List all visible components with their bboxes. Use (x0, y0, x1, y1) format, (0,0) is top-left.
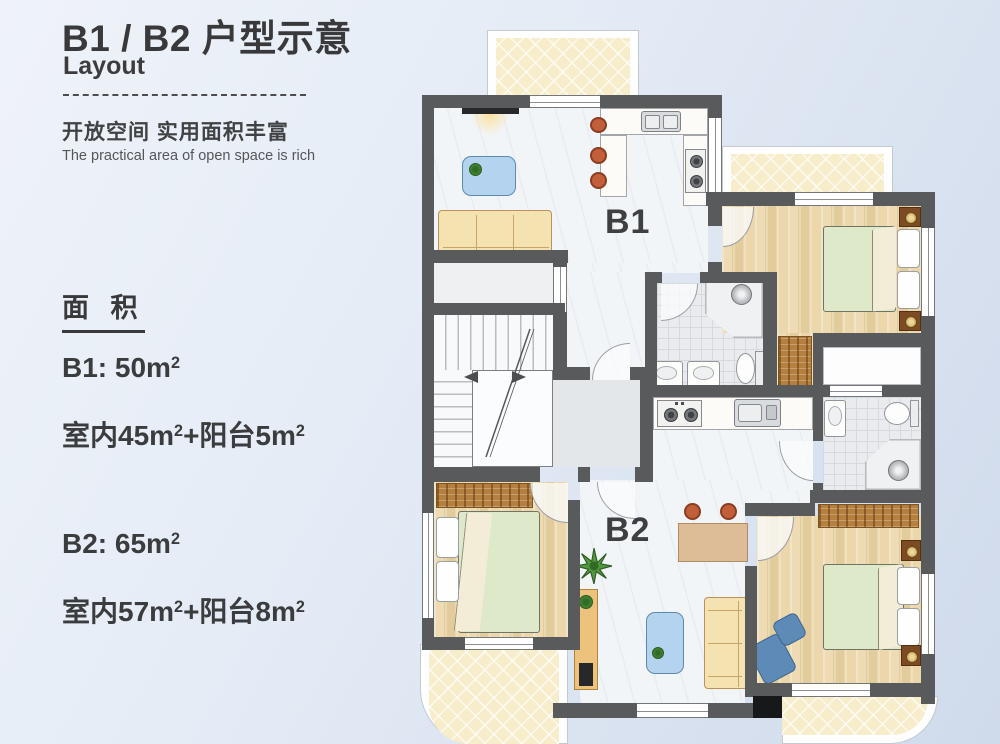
window (921, 228, 935, 318)
pillow (897, 271, 920, 309)
plant-icon (576, 548, 612, 584)
bathroom-sink (687, 361, 720, 388)
bar-stool (590, 147, 607, 164)
toilet-b2 (884, 402, 910, 425)
stove-b1 (685, 149, 706, 193)
window (830, 385, 882, 397)
entry-marker (753, 696, 782, 718)
wall-segment (422, 95, 434, 267)
wall-segment (870, 683, 935, 697)
nightstand (899, 207, 921, 227)
wall-segment (921, 316, 935, 576)
wall-segment (640, 385, 830, 397)
plant-icon (652, 647, 664, 659)
wall-segment (422, 250, 568, 263)
wall-segment (422, 637, 465, 650)
wall-segment (745, 683, 792, 697)
storage-room-floor (434, 263, 553, 303)
wall-segment (422, 467, 540, 482)
coffee-table-b2 (646, 612, 684, 674)
shower-head-icon (731, 284, 752, 305)
wall-segment (533, 637, 580, 650)
window (530, 95, 600, 108)
nightstand (899, 311, 921, 331)
floor-plan: B1 B2 (0, 0, 1000, 744)
nightstand (901, 645, 921, 666)
window (795, 192, 873, 206)
window (708, 118, 722, 198)
wall-segment (422, 315, 434, 480)
wall-segment (921, 204, 935, 230)
window (792, 683, 870, 697)
plant-icon (469, 163, 482, 176)
wardrobe-b2-right (818, 504, 919, 528)
wall-segment (763, 272, 777, 390)
sofa-b2 (704, 597, 748, 689)
stairs-direction-arrow (434, 315, 554, 467)
wall-segment (745, 566, 757, 697)
dining-table-b2 (678, 523, 748, 562)
pillow (897, 229, 920, 268)
wall-segment (553, 703, 637, 718)
wall-segment (645, 272, 662, 283)
wall-segment (600, 95, 722, 108)
wall-segment (882, 385, 935, 397)
balcony-top-right-floor (731, 154, 884, 194)
tv-icon (579, 663, 593, 686)
pillow (897, 567, 920, 605)
nightstand (901, 540, 921, 561)
wall-segment (578, 467, 590, 482)
pillow (897, 608, 920, 646)
stool (684, 503, 701, 520)
plant-icon (579, 595, 593, 609)
toilet-tank (910, 400, 919, 427)
shared-hallway-floor (553, 380, 640, 467)
bar-stool (590, 117, 607, 133)
wall-segment (568, 500, 580, 647)
wardrobe-b2-left (436, 483, 533, 508)
coffee-table-b1 (462, 156, 516, 196)
balcony-top-left-floor (496, 38, 630, 98)
wall-segment (706, 192, 795, 206)
window (637, 703, 708, 718)
bathroom-sink-b2 (824, 400, 846, 437)
window (921, 574, 935, 656)
wall-segment (813, 333, 935, 347)
stool (720, 503, 737, 520)
kitchen-counter-b1-left (600, 135, 627, 197)
b2-corridor-floor (745, 490, 810, 503)
wall-segment (422, 303, 565, 315)
wall-segment (810, 490, 935, 503)
tv-glow (470, 114, 510, 136)
balcony-bottom-right-floor (782, 696, 928, 735)
unit-label-b2: B2 (605, 511, 650, 550)
wall-segment (422, 95, 530, 108)
wall-segment (745, 503, 815, 516)
wall-segment (553, 367, 590, 380)
toilet-b1 (736, 353, 755, 384)
stove-b2 (657, 400, 702, 427)
pillow (436, 561, 459, 602)
wall-segment (635, 467, 653, 482)
pillow (436, 517, 459, 558)
bar-stool (590, 172, 607, 189)
balcony-bottom-left-floor (429, 650, 559, 744)
wall-segment (708, 206, 722, 226)
kitchen-sink-b1 (641, 111, 681, 132)
page: B1 / B2 户型示意 Layout 开放空间 实用面积丰富 The prac… (0, 0, 1000, 744)
shower-head-icon (888, 460, 909, 481)
unit-label-b1: B1 (605, 203, 650, 242)
light-well (823, 347, 921, 385)
kitchen-sink-b2 (734, 399, 781, 427)
wall-segment (645, 272, 657, 390)
wardrobe-b1 (778, 336, 812, 388)
wall-segment (708, 703, 754, 718)
wall-segment (422, 467, 434, 515)
window (422, 513, 434, 620)
bed-fold (872, 226, 896, 311)
window (465, 637, 533, 650)
wall-segment (813, 397, 823, 441)
